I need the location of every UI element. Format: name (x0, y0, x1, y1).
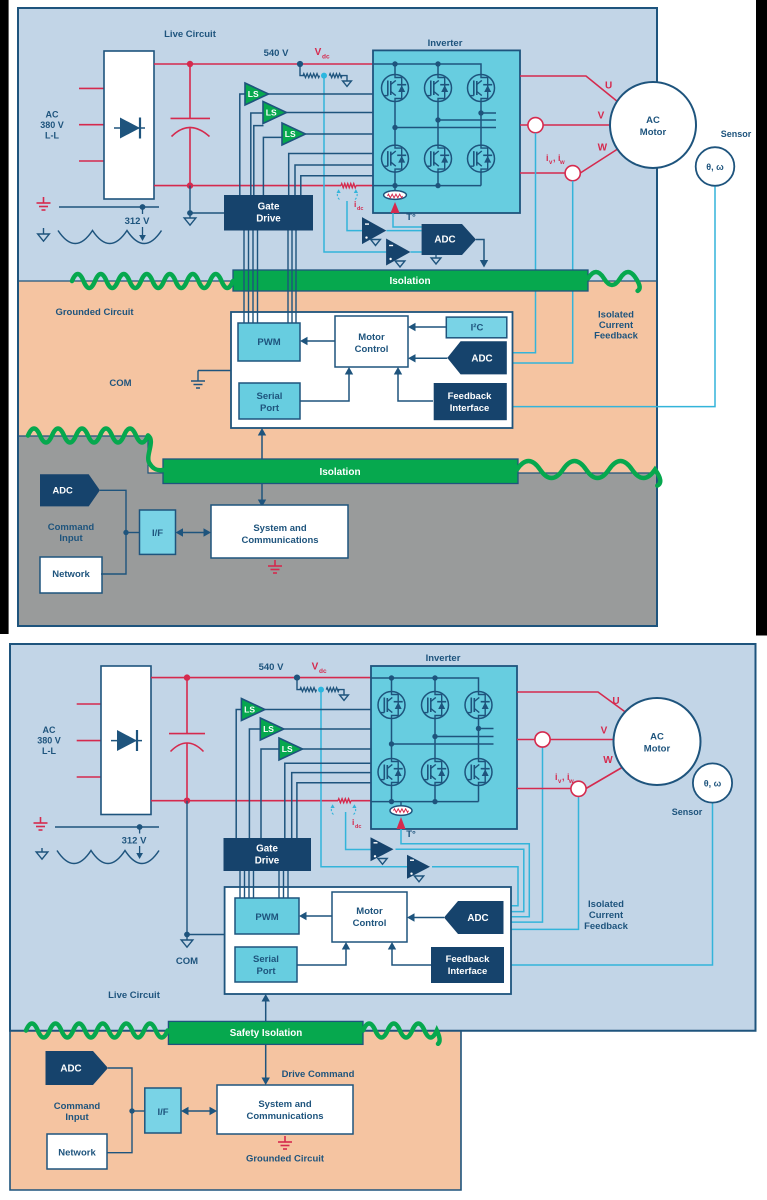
svg-text:Control: Control (353, 918, 387, 929)
svg-text:312 V: 312 V (122, 836, 147, 847)
svg-text:Interface: Interface (448, 966, 488, 977)
svg-text:Input: Input (59, 533, 83, 544)
svg-text:AC: AC (650, 732, 664, 743)
svg-text:V: V (315, 47, 322, 58)
svg-text:Serial: Serial (253, 954, 279, 965)
svg-text:Command: Command (48, 522, 95, 533)
svg-text:V: V (598, 111, 605, 122)
svg-text:L-L: L-L (45, 131, 59, 141)
svg-text:AC: AC (46, 110, 59, 120)
svg-text:LS: LS (244, 705, 255, 715)
svg-text:V: V (312, 662, 319, 673)
svg-text:T°: T° (406, 212, 416, 223)
svg-text:Network: Network (52, 569, 90, 580)
svg-text:I²C: I²C (471, 323, 484, 334)
svg-text:Drive: Drive (255, 856, 280, 867)
svg-text:Motor: Motor (644, 744, 671, 755)
svg-text:Control: Control (355, 344, 389, 355)
svg-text:Inverter: Inverter (428, 38, 463, 49)
svg-text:Grounded Circuit: Grounded Circuit (55, 307, 134, 318)
svg-text:Port: Port (257, 966, 277, 977)
svg-text:L-L: L-L (42, 746, 56, 756)
svg-text:COM: COM (109, 378, 131, 389)
svg-text:Live Circuit: Live Circuit (108, 990, 161, 1001)
svg-text:System and: System and (253, 523, 307, 534)
svg-text:System and: System and (258, 1099, 312, 1110)
svg-text:ADC: ADC (434, 235, 455, 246)
svg-text:Port: Port (260, 403, 280, 414)
svg-text:Network: Network (58, 1148, 96, 1159)
svg-text:Feedback: Feedback (448, 391, 493, 402)
svg-text:T°: T° (406, 829, 416, 840)
svg-text:I/F: I/F (152, 528, 163, 539)
svg-text:Gate: Gate (256, 844, 278, 855)
svg-text:Communications: Communications (241, 535, 318, 546)
svg-text:Feedback: Feedback (594, 331, 639, 342)
svg-text:Feedback: Feedback (584, 921, 629, 932)
svg-text:380 V: 380 V (37, 736, 61, 746)
svg-text:Drive Command: Drive Command (282, 1069, 355, 1080)
svg-text:Motor: Motor (640, 127, 667, 138)
svg-text:Interface: Interface (450, 403, 490, 414)
svg-text:LS: LS (282, 744, 293, 754)
svg-text:LS: LS (266, 108, 277, 118)
svg-text:Serial: Serial (257, 391, 283, 402)
svg-text:AC: AC (43, 725, 56, 735)
svg-text:ADC: ADC (471, 354, 492, 365)
svg-text:dc: dc (322, 54, 330, 61)
svg-text:U: U (612, 696, 619, 707)
svg-text:I/F: I/F (157, 1107, 168, 1118)
svg-text:LS: LS (263, 724, 274, 734)
svg-text:Grounded Circuit: Grounded Circuit (246, 1154, 325, 1165)
svg-text:ADC: ADC (60, 1064, 81, 1075)
svg-text:θ, ω: θ, ω (706, 162, 724, 172)
svg-text:w: w (559, 160, 565, 166)
svg-text:dc: dc (355, 824, 361, 830)
svg-text:dc: dc (357, 206, 363, 212)
svg-text:Isolation: Isolation (319, 467, 360, 478)
svg-text:380 V: 380 V (40, 120, 64, 130)
svg-text:dc: dc (319, 668, 327, 675)
svg-text:Inverter: Inverter (426, 653, 461, 664)
svg-text:W: W (598, 143, 608, 154)
svg-text:Current: Current (599, 320, 634, 331)
svg-text:Command: Command (54, 1101, 101, 1112)
svg-text:ADC: ADC (467, 913, 488, 924)
svg-text:PWM: PWM (257, 337, 280, 348)
svg-text:Isolated: Isolated (588, 899, 624, 910)
svg-text:Motor: Motor (358, 332, 385, 343)
svg-text:θ, ω: θ, ω (704, 779, 722, 789)
svg-text:AC: AC (646, 115, 660, 126)
svg-text:Motor: Motor (356, 906, 383, 917)
svg-text:Drive: Drive (256, 214, 281, 225)
svg-text:Sensor: Sensor (721, 129, 752, 139)
svg-text:Safety Isolation: Safety Isolation (230, 1028, 302, 1039)
svg-text:Current: Current (589, 910, 624, 921)
svg-text:V: V (601, 726, 608, 737)
svg-text:W: W (603, 755, 613, 766)
svg-text:U: U (605, 80, 612, 91)
svg-text:Sensor: Sensor (672, 807, 703, 817)
svg-text:540 V: 540 V (259, 662, 284, 673)
svg-text:ADC: ADC (52, 484, 73, 495)
svg-text:540 V: 540 V (264, 48, 289, 59)
svg-text:312 V: 312 V (125, 216, 150, 227)
svg-text:LS: LS (285, 129, 296, 139)
svg-text:Gate: Gate (258, 202, 280, 213)
svg-text:Communications: Communications (246, 1111, 323, 1122)
svg-text:PWM: PWM (255, 912, 278, 923)
svg-text:Isolated: Isolated (598, 309, 634, 320)
svg-text:Isolation: Isolation (389, 276, 430, 287)
svg-text:Input: Input (65, 1112, 89, 1123)
svg-text:COM: COM (176, 956, 198, 967)
svg-text:Feedback: Feedback (446, 954, 491, 965)
svg-text:Live Circuit: Live Circuit (164, 29, 217, 40)
svg-text:LS: LS (248, 89, 259, 99)
